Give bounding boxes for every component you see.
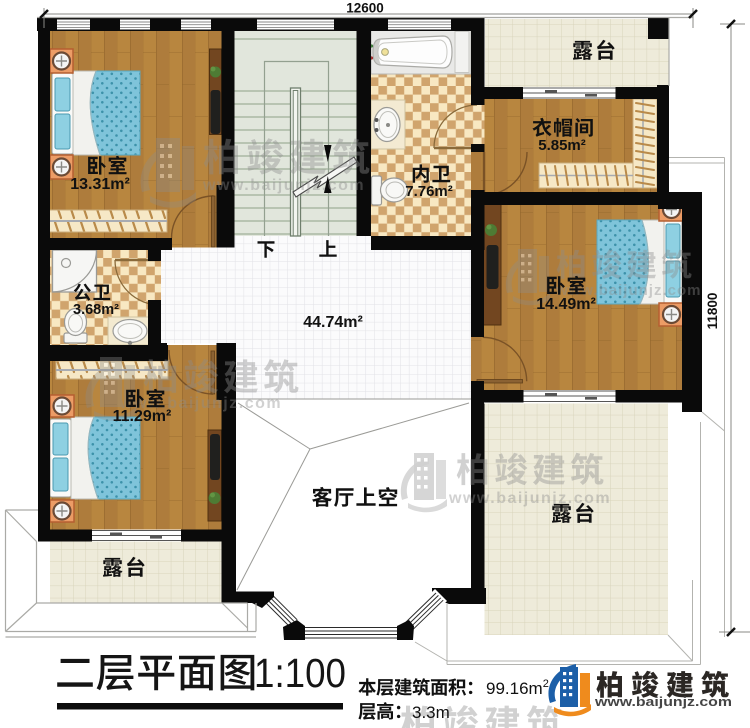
svg-text:5.85m²: 5.85m² <box>538 137 586 154</box>
svg-text:1:100: 1:100 <box>254 650 346 696</box>
svg-text:99.16m2: 99.16m2 <box>486 678 549 698</box>
svg-text:7.76m²: 7.76m² <box>405 183 453 200</box>
svg-text:3.3m: 3.3m <box>412 703 450 722</box>
svg-text:www.baijunjz.com: www.baijunjz.com <box>202 177 365 194</box>
svg-text:44.74m²: 44.74m² <box>303 314 363 331</box>
svg-text:11800: 11800 <box>705 293 720 330</box>
svg-text:3.68m²: 3.68m² <box>73 302 119 318</box>
svg-text:13.31m²: 13.31m² <box>70 176 130 193</box>
svg-text:www.baijunjz.com: www.baijunjz.com <box>448 490 611 507</box>
svg-text:14.49m²: 14.49m² <box>536 296 596 313</box>
svg-text:12600: 12600 <box>346 1 384 16</box>
svg-text:www.baijunjz.com: www.baijunjz.com <box>594 695 732 709</box>
svg-text:11.29m²: 11.29m² <box>113 408 172 425</box>
